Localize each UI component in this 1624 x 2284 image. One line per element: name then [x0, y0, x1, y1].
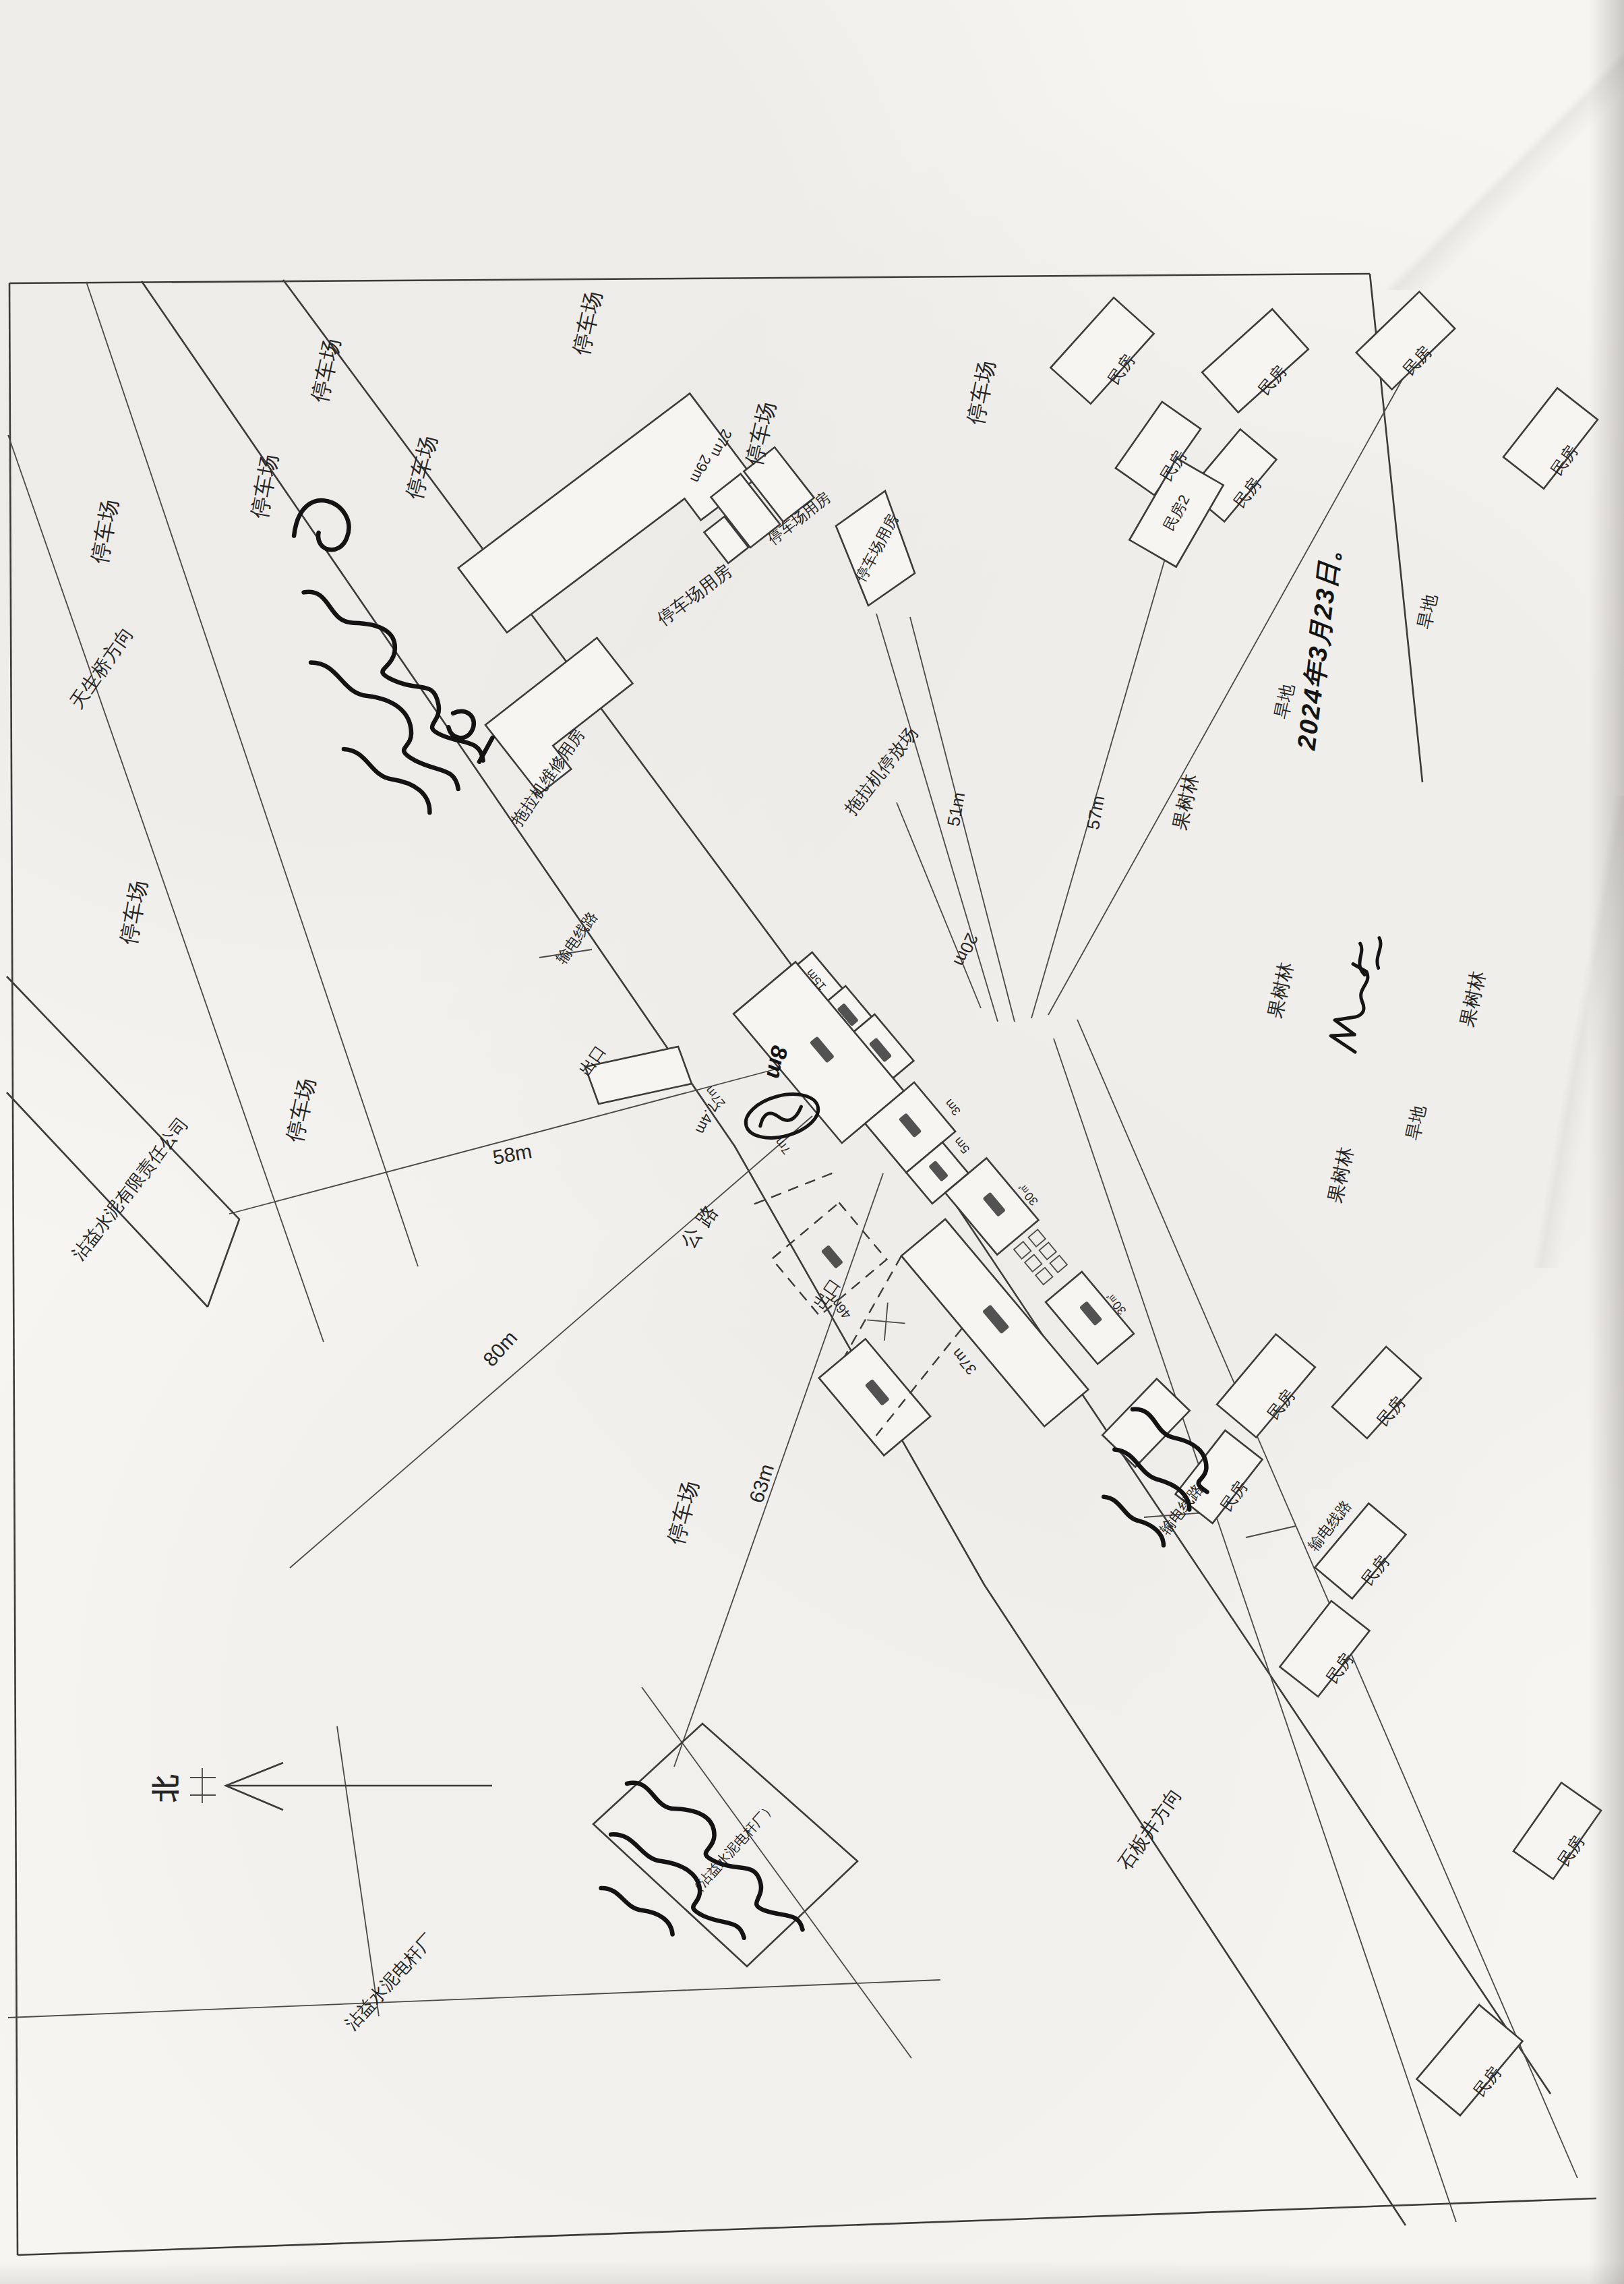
parking-label: 停车场 — [87, 498, 122, 566]
direction-tianshengqiao-label: 天生桥方向 — [66, 623, 138, 712]
dry-land-label: 旱地 — [1271, 682, 1298, 720]
left-road-2 — [8, 435, 324, 1342]
cement-pole-factory-label: 沾益水泥电杆厂 — [341, 1929, 438, 2034]
text-labels: 停车场 停车场 停车场 停车场 停车场 停车场 停车场 停车场 停车场 停车场 … — [66, 289, 1588, 2099]
road-label: 公路 — [676, 1195, 725, 1252]
dim-3m: 3m — [942, 1096, 963, 1118]
cement-company-label: 沾益水泥有限责任公司 — [68, 1113, 192, 1264]
x-mark — [867, 1303, 905, 1341]
orchard-label: 果树林 — [1325, 1145, 1357, 1205]
line-20m — [897, 802, 981, 1008]
highway-line-lower — [142, 281, 1406, 2225]
tractor-parking-label: 拖拉机停放场 — [841, 723, 922, 819]
tractor-repair-building — [485, 638, 651, 794]
dry-land-label: 旱地 — [1414, 592, 1441, 631]
handwritten-signature: （手写签名） — [1329, 932, 1385, 1053]
power-line-1 — [1054, 1038, 1456, 2222]
parking-building-label: 停车场用房 — [653, 560, 735, 629]
dim-20m: 20m — [950, 930, 983, 970]
parking-label: 停车场 — [307, 336, 344, 404]
parking-label: 停车场 — [282, 1076, 319, 1144]
site-plan-svg: 15m 3m 5m 7m 27m 46m 37m 30㎡ 30㎡ — [0, 0, 1624, 2284]
parking-label: 停车场 — [402, 433, 441, 502]
parking-label: 停车场 — [116, 879, 151, 947]
line-80m — [290, 1116, 812, 1568]
parking-label: 停车场 — [963, 358, 999, 426]
north-arrow: 北 — [150, 1763, 492, 1810]
dim-58m: 58m — [491, 1140, 533, 1169]
orchard-label: 果树林 — [1265, 960, 1297, 1020]
paper-crease-top-right — [1341, 0, 1624, 290]
leader-power-2 — [1246, 1526, 1296, 1538]
dry-land-label: 旱地 — [1402, 1103, 1429, 1142]
paper-edge-shadow-right — [1589, 0, 1624, 2284]
line-to-house2 — [1031, 543, 1170, 1018]
left-road-1 — [86, 282, 418, 1266]
dim-57m: 57m — [1083, 794, 1108, 831]
dim-80m: 80m — [479, 1326, 522, 1370]
dim-37m: 37m — [949, 1345, 980, 1378]
left-road-3 — [337, 1726, 379, 2016]
highway-line-upper — [283, 280, 1551, 2094]
orchard-label: 果树林 — [1170, 772, 1202, 832]
parking-label: 停车场 — [247, 452, 282, 521]
line-63m — [674, 1173, 883, 1767]
parking-label: 停车场 — [568, 289, 605, 357]
handwritten-date: 2024年3月23日。 — [1292, 533, 1346, 753]
dim-7.4m: 7.4m — [692, 1100, 721, 1137]
line-51m — [876, 614, 998, 1022]
scanned-site-plan: 15m 3m 5m 7m 27m 46m 37m 30㎡ 30㎡ — [0, 0, 1624, 2284]
bottom-road — [8, 1980, 940, 2018]
dim-51m: 51m — [943, 790, 969, 827]
paper-edge-shadow-bottom — [0, 2261, 1624, 2284]
house-with-scrawl — [1102, 1379, 1189, 1467]
dim-5m: 5m — [951, 1134, 972, 1156]
small-pens — [1014, 1229, 1067, 1285]
parking-label: 停车场 — [663, 1478, 702, 1547]
cement-company-block — [7, 976, 239, 1307]
parking-building-large — [458, 393, 755, 654]
handwriting: 2024年3月23日。 8m （手写批注，字迹潦草难以辨认） （手写签名） （圈… — [202, 490, 1385, 1998]
dim-63m: 63m — [745, 1461, 778, 1506]
north-label: 北 — [150, 1774, 180, 1803]
